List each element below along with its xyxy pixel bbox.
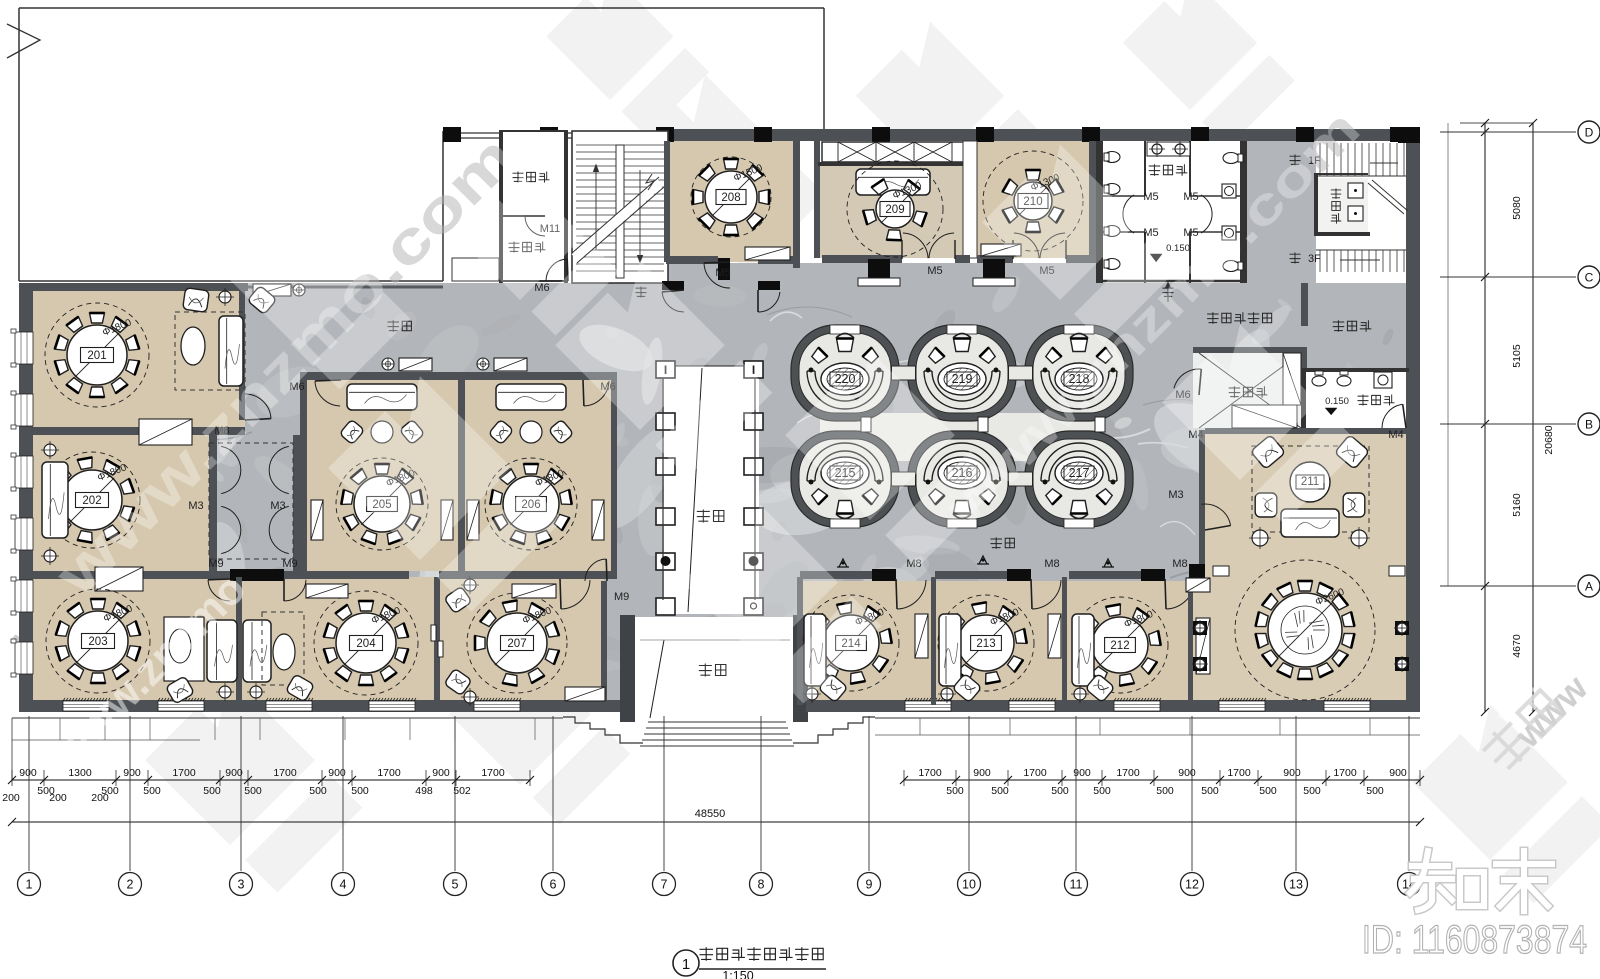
- svg-text:900: 900: [123, 767, 141, 779]
- svg-text:500: 500: [143, 785, 161, 797]
- svg-text:M5: M5: [927, 265, 942, 277]
- svg-text:5: 5: [452, 878, 459, 892]
- svg-text:1700: 1700: [172, 767, 196, 779]
- svg-text:A: A: [1585, 580, 1593, 594]
- svg-text:213: 213: [976, 638, 995, 650]
- svg-text:500: 500: [1366, 785, 1384, 797]
- svg-text:8: 8: [758, 878, 765, 892]
- svg-text:M4: M4: [1388, 429, 1403, 441]
- svg-text:10: 10: [962, 878, 976, 892]
- svg-text:200: 200: [49, 792, 67, 804]
- svg-text:1700: 1700: [918, 767, 942, 779]
- svg-text:5160: 5160: [1511, 493, 1523, 517]
- svg-text:M8: M8: [1172, 558, 1187, 570]
- svg-text:500: 500: [1051, 785, 1069, 797]
- svg-text:M5: M5: [715, 267, 730, 279]
- svg-text:20680: 20680: [1543, 425, 1555, 454]
- svg-text:500: 500: [946, 785, 964, 797]
- svg-text:M3: M3: [270, 500, 285, 512]
- svg-text:48550: 48550: [695, 808, 726, 820]
- svg-text:207: 207: [507, 638, 526, 650]
- svg-text:4670: 4670: [1511, 634, 1523, 658]
- svg-text:900: 900: [1283, 767, 1301, 779]
- svg-text:13: 13: [1289, 878, 1303, 892]
- svg-text:12: 12: [1185, 878, 1199, 892]
- svg-text:500: 500: [1303, 785, 1321, 797]
- svg-text:217: 217: [1069, 466, 1090, 480]
- svg-text:209: 209: [885, 204, 904, 216]
- svg-text:ID: 1160873874: ID: 1160873874: [1362, 918, 1587, 962]
- svg-text:2: 2: [127, 878, 134, 892]
- svg-text:1700: 1700: [377, 767, 401, 779]
- svg-text:900: 900: [19, 767, 37, 779]
- svg-text:1: 1: [26, 878, 33, 892]
- svg-text:3F: 3F: [1308, 253, 1321, 265]
- svg-text:500: 500: [991, 785, 1009, 797]
- svg-text:5080: 5080: [1511, 196, 1523, 220]
- svg-text:201: 201: [87, 350, 106, 362]
- svg-text:200: 200: [2, 792, 20, 804]
- svg-text:219: 219: [952, 372, 973, 386]
- svg-text:1:150: 1:150: [722, 969, 753, 979]
- svg-text:0.150: 0.150: [1325, 396, 1349, 407]
- svg-text:500: 500: [1259, 785, 1277, 797]
- svg-text:208: 208: [721, 192, 740, 204]
- svg-text:500: 500: [203, 785, 221, 797]
- svg-text:M9: M9: [282, 558, 297, 570]
- svg-text:1700: 1700: [1333, 767, 1357, 779]
- svg-text:5105: 5105: [1511, 344, 1523, 368]
- svg-text:M6: M6: [534, 282, 549, 294]
- svg-text:212: 212: [1110, 640, 1129, 652]
- svg-text:M9: M9: [614, 591, 629, 603]
- svg-text:500: 500: [1156, 785, 1174, 797]
- svg-text:1: 1: [682, 956, 690, 973]
- svg-text:498: 498: [415, 785, 433, 797]
- svg-text:500: 500: [351, 785, 369, 797]
- svg-text:500: 500: [309, 785, 327, 797]
- svg-text:1700: 1700: [481, 767, 505, 779]
- svg-text:900: 900: [1178, 767, 1196, 779]
- svg-text:200: 200: [91, 792, 109, 804]
- svg-text:900: 900: [432, 767, 450, 779]
- svg-text:203: 203: [88, 636, 107, 648]
- svg-text:M3: M3: [1168, 489, 1183, 501]
- svg-text:C: C: [1585, 271, 1594, 285]
- svg-text:11: 11: [1070, 878, 1083, 892]
- svg-text:7: 7: [661, 878, 668, 892]
- svg-text:1700: 1700: [1116, 767, 1140, 779]
- svg-text:M5: M5: [1143, 191, 1158, 203]
- svg-text:B: B: [1585, 418, 1593, 432]
- svg-text:9: 9: [866, 878, 873, 892]
- svg-text:D: D: [1585, 126, 1594, 140]
- svg-text:204: 204: [356, 638, 376, 650]
- svg-text:502: 502: [453, 785, 471, 797]
- svg-text:4: 4: [340, 878, 347, 892]
- svg-text:6: 6: [550, 878, 557, 892]
- svg-text:M8: M8: [1044, 558, 1059, 570]
- svg-text:1700: 1700: [273, 767, 297, 779]
- svg-text:1700: 1700: [1227, 767, 1251, 779]
- svg-text:900: 900: [1389, 767, 1407, 779]
- svg-text:M5: M5: [1183, 191, 1198, 203]
- svg-text:500: 500: [1201, 785, 1219, 797]
- svg-text:900: 900: [973, 767, 991, 779]
- svg-text:900: 900: [225, 767, 243, 779]
- svg-text:500: 500: [1093, 785, 1111, 797]
- svg-text:1700: 1700: [1023, 767, 1047, 779]
- svg-text:500: 500: [244, 785, 262, 797]
- svg-text:3: 3: [238, 878, 245, 892]
